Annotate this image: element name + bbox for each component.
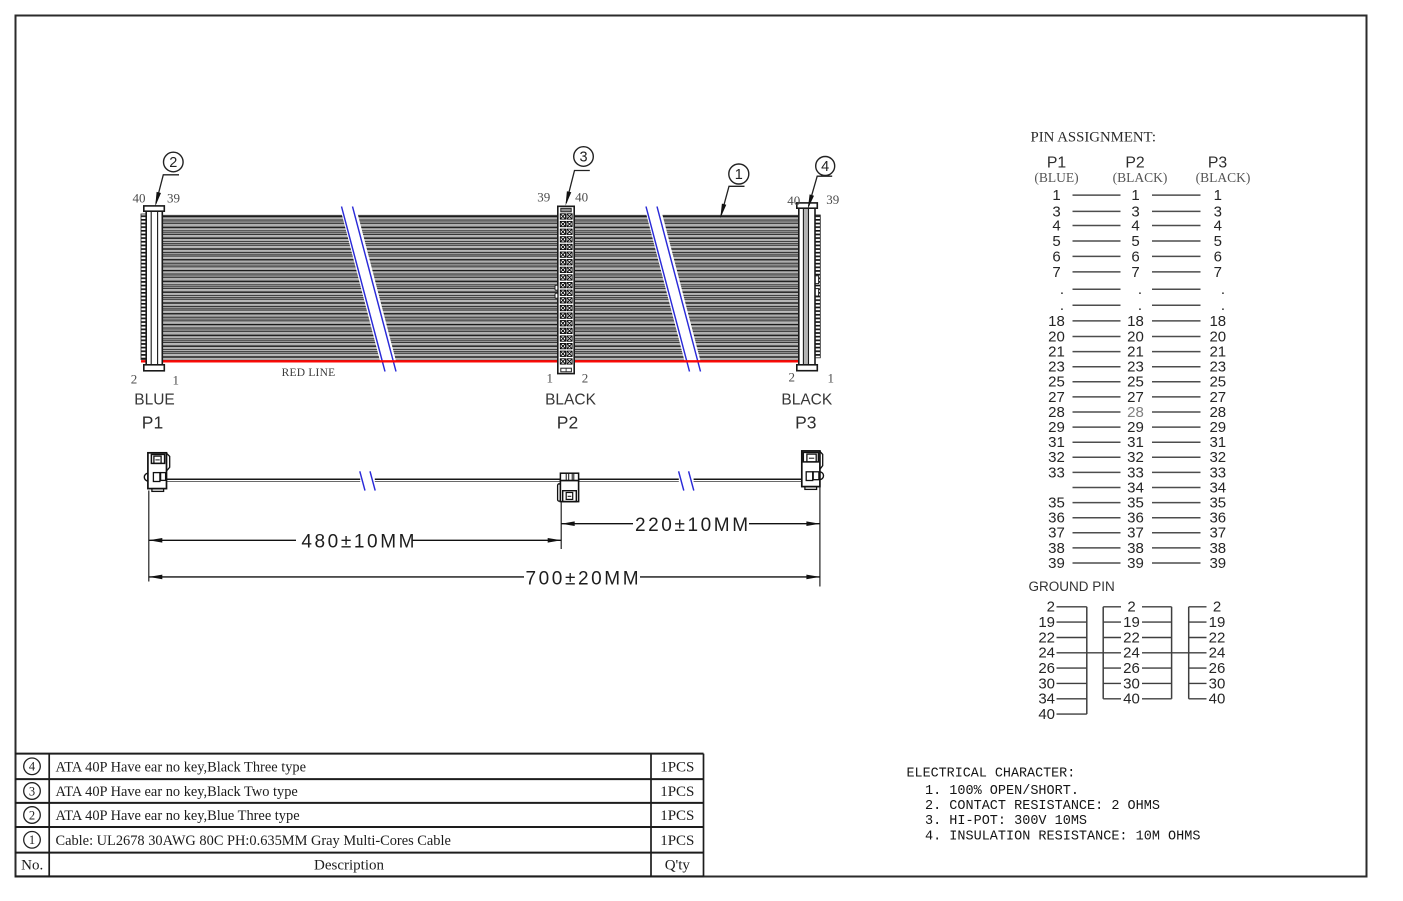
svg-text:40: 40	[1209, 691, 1226, 708]
svg-text:18: 18	[1048, 313, 1065, 330]
svg-text:4: 4	[1131, 217, 1139, 234]
svg-text:39: 39	[167, 191, 180, 206]
svg-text:P2: P2	[557, 413, 578, 433]
svg-text:Q'ty: Q'ty	[665, 858, 691, 874]
svg-text:700±20MM: 700±20MM	[525, 569, 641, 590]
svg-text:3. HI-POT: 300V 10MS: 3. HI-POT: 300V 10MS	[925, 814, 1087, 829]
svg-text:BLUE: BLUE	[134, 392, 175, 409]
svg-text:Cable: UL2678 30AWG 80C PH:0.6: Cable: UL2678 30AWG 80C PH:0.635MM Gray …	[56, 833, 451, 849]
svg-text:PIN ASSIGNMENT:: PIN ASSIGNMENT:	[1031, 130, 1156, 146]
svg-text:P1: P1	[142, 413, 163, 433]
svg-text:40: 40	[787, 193, 800, 208]
svg-text:ATA 40P Have ear no key,Blue T: ATA 40P Have ear no key,Blue Three type	[56, 808, 300, 824]
svg-text:7: 7	[1131, 264, 1139, 281]
svg-text:.: .	[1060, 297, 1064, 314]
svg-text:BLACK: BLACK	[545, 392, 596, 409]
svg-text:1PCS: 1PCS	[660, 784, 694, 800]
svg-text:40: 40	[1038, 706, 1055, 723]
svg-text:18: 18	[1209, 313, 1226, 330]
svg-text:.: .	[1138, 281, 1142, 298]
svg-text:1. 100% OPEN/SHORT.: 1. 100% OPEN/SHORT.	[925, 784, 1079, 799]
svg-text:2: 2	[169, 155, 177, 171]
svg-text:1PCS: 1PCS	[660, 833, 694, 849]
svg-text:2: 2	[29, 808, 35, 822]
svg-text:39: 39	[826, 192, 839, 207]
svg-text:6: 6	[1052, 248, 1060, 265]
svg-text:3: 3	[29, 784, 35, 798]
svg-text:2: 2	[131, 371, 138, 386]
svg-text:No.: No.	[21, 858, 43, 874]
svg-text:6: 6	[1214, 248, 1222, 265]
svg-text:RED LINE: RED LINE	[282, 367, 336, 379]
svg-text:1: 1	[29, 833, 35, 847]
svg-text:7: 7	[1214, 264, 1222, 281]
svg-text:1: 1	[547, 370, 554, 385]
svg-text:33: 33	[1048, 464, 1065, 481]
svg-text:(BLACK): (BLACK)	[1196, 170, 1251, 185]
svg-text:P3: P3	[795, 413, 816, 433]
svg-text:40: 40	[133, 191, 146, 206]
svg-text:39: 39	[1127, 555, 1144, 572]
svg-text:(BLUE): (BLUE)	[1034, 170, 1078, 185]
svg-text:1: 1	[735, 167, 743, 183]
svg-text:.: .	[1138, 297, 1142, 314]
svg-text:Description: Description	[314, 858, 384, 874]
svg-text:6: 6	[1131, 248, 1139, 265]
svg-text:4. INSULATION RESISTANCE: 10M: 4. INSULATION RESISTANCE: 10M OHMS	[925, 829, 1200, 844]
svg-text:.: .	[1221, 297, 1225, 314]
svg-text:7: 7	[1052, 264, 1060, 281]
svg-text:(BLACK): (BLACK)	[1113, 170, 1168, 185]
svg-text:39: 39	[1209, 555, 1226, 572]
svg-text:2: 2	[582, 370, 589, 385]
svg-text:4: 4	[29, 760, 36, 774]
svg-text:18: 18	[1127, 313, 1144, 330]
svg-text:.: .	[1060, 281, 1064, 298]
svg-text:1: 1	[173, 372, 180, 387]
svg-text:BLACK: BLACK	[781, 392, 832, 409]
svg-text:40: 40	[1123, 691, 1140, 708]
svg-text:4: 4	[1052, 217, 1060, 234]
svg-text:480±10MM: 480±10MM	[301, 531, 417, 552]
svg-text:.: .	[1221, 281, 1225, 298]
svg-text:40: 40	[575, 190, 588, 205]
svg-text:1: 1	[1214, 187, 1222, 204]
svg-text:4: 4	[1214, 217, 1222, 234]
svg-text:2: 2	[789, 370, 796, 385]
svg-text:1PCS: 1PCS	[660, 759, 694, 775]
svg-text:1: 1	[827, 371, 834, 386]
svg-text:1: 1	[1052, 187, 1060, 204]
svg-text:4: 4	[821, 159, 829, 175]
svg-text:2. CONTACT RESISTANCE: 2 OHMS: 2. CONTACT RESISTANCE: 2 OHMS	[925, 799, 1160, 814]
svg-text:GROUND PIN: GROUND PIN	[1029, 579, 1115, 594]
svg-text:39: 39	[537, 190, 550, 205]
svg-text:ATA 40P Have ear no key,Black: ATA 40P Have ear no key,Black Two type	[56, 784, 298, 800]
svg-text:220±10MM: 220±10MM	[635, 515, 751, 536]
svg-text:1PCS: 1PCS	[660, 808, 694, 824]
svg-text:ELECTRICAL CHARACTER:: ELECTRICAL CHARACTER:	[907, 767, 1076, 782]
svg-text:ATA 40P Have ear no key,Black: ATA 40P Have ear no key,Black Three type	[56, 759, 306, 775]
svg-text:39: 39	[1048, 555, 1065, 572]
svg-text:3: 3	[579, 150, 587, 166]
svg-text:1: 1	[1131, 187, 1139, 204]
